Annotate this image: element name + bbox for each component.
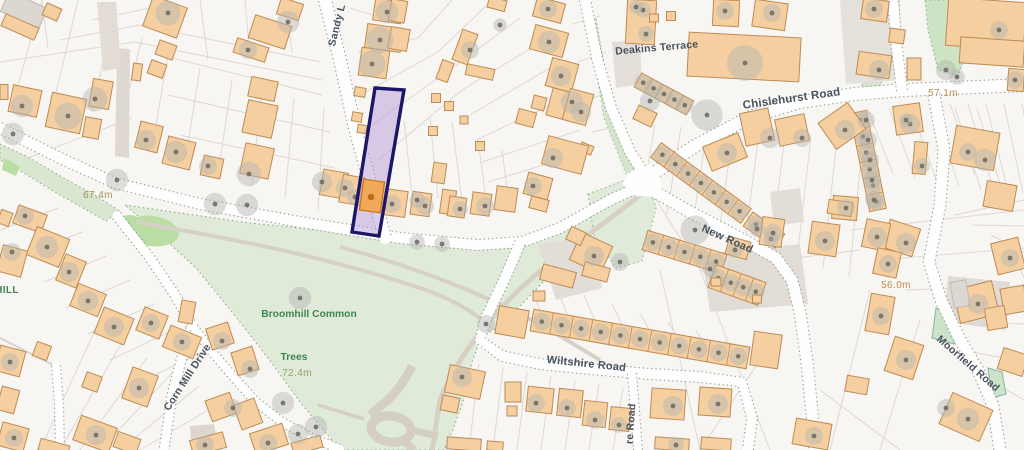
svg-text:72.4m: 72.4m bbox=[282, 368, 312, 379]
svg-text:Broomhill Common: Broomhill Common bbox=[261, 309, 357, 320]
svg-text:Trees: Trees bbox=[281, 352, 308, 363]
svg-text:HILL: HILL bbox=[0, 285, 19, 296]
svg-text:67.4m: 67.4m bbox=[83, 190, 113, 201]
svg-text:56.0m: 56.0m bbox=[881, 280, 911, 291]
svg-text:57.1m: 57.1m bbox=[928, 88, 958, 99]
